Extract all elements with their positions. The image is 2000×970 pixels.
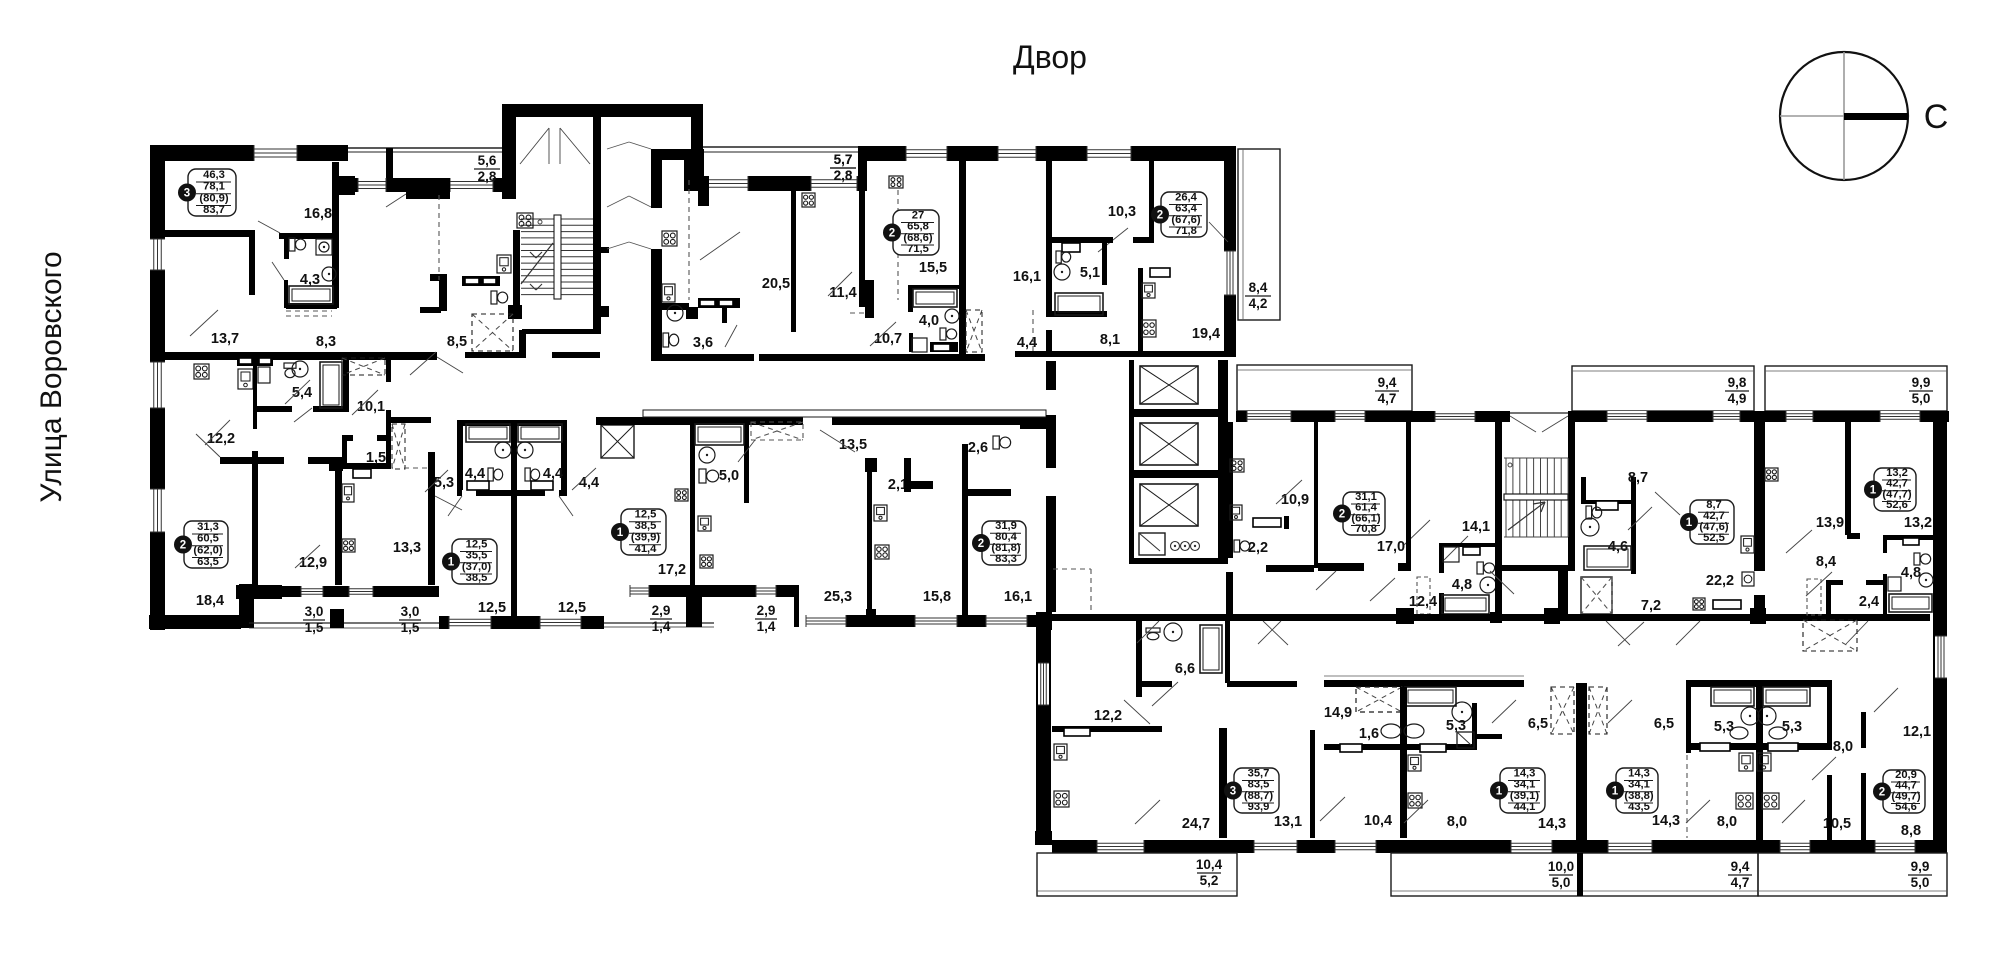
svg-text:(62,0): (62,0) (193, 544, 222, 556)
svg-text:16,1: 16,1 (1004, 589, 1032, 605)
svg-text:13,1: 13,1 (1274, 814, 1302, 830)
svg-text:2,8: 2,8 (834, 168, 853, 183)
svg-text:4,8: 4,8 (1452, 577, 1472, 593)
svg-text:7,2: 7,2 (1641, 598, 1661, 614)
svg-text:1: 1 (1612, 786, 1619, 798)
svg-text:5,2: 5,2 (1200, 873, 1219, 888)
svg-text:4,4: 4,4 (1017, 335, 1037, 351)
svg-text:5,0: 5,0 (1911, 875, 1930, 890)
svg-text:4,7: 4,7 (1378, 391, 1397, 406)
svg-text:5,3: 5,3 (1714, 719, 1734, 735)
svg-text:14,3: 14,3 (1652, 813, 1680, 829)
svg-text:60,5: 60,5 (197, 533, 219, 545)
svg-text:8,4: 8,4 (1249, 280, 1268, 295)
svg-text:12,5: 12,5 (635, 509, 657, 521)
svg-text:8,0: 8,0 (1833, 739, 1853, 755)
svg-text:4,0: 4,0 (919, 313, 939, 329)
svg-text:2: 2 (978, 538, 984, 550)
svg-text:18,4: 18,4 (196, 593, 224, 609)
svg-text:5,0: 5,0 (719, 468, 739, 484)
svg-text:1: 1 (1870, 485, 1877, 497)
svg-text:13,9: 13,9 (1816, 515, 1844, 531)
svg-text:2,8: 2,8 (478, 169, 497, 184)
svg-text:11,4: 11,4 (829, 285, 856, 301)
svg-text:12,5: 12,5 (478, 600, 506, 616)
svg-text:15,8: 15,8 (923, 589, 951, 605)
svg-text:3,0: 3,0 (305, 604, 324, 619)
svg-text:10,4: 10,4 (1196, 857, 1223, 872)
svg-text:3,0: 3,0 (401, 604, 420, 619)
svg-text:9,4: 9,4 (1731, 859, 1750, 874)
svg-text:1: 1 (448, 557, 455, 569)
svg-text:8,5: 8,5 (447, 334, 467, 350)
svg-text:3,6: 3,6 (693, 335, 713, 351)
svg-text:4,9: 4,9 (1728, 391, 1747, 406)
svg-text:22,2: 22,2 (1706, 573, 1734, 589)
svg-text:8,1: 8,1 (1100, 332, 1120, 348)
svg-text:1,6: 1,6 (1359, 726, 1379, 742)
svg-text:8,7: 8,7 (1628, 470, 1648, 486)
svg-text:35,7: 35,7 (1248, 767, 1270, 779)
svg-text:17,0: 17,0 (1377, 539, 1405, 555)
svg-text:9,9: 9,9 (1911, 859, 1930, 874)
svg-text:4,4: 4,4 (465, 466, 485, 482)
svg-text:6,5: 6,5 (1654, 716, 1674, 732)
svg-text:2,9: 2,9 (757, 603, 776, 618)
svg-text:8,3: 8,3 (316, 334, 336, 350)
svg-text:10,3: 10,3 (1108, 204, 1136, 220)
svg-text:8,0: 8,0 (1447, 814, 1467, 830)
svg-text:9,8: 9,8 (1728, 375, 1747, 390)
svg-text:2: 2 (1339, 509, 1345, 521)
svg-text:12,2: 12,2 (1094, 708, 1122, 724)
svg-text:8,4: 8,4 (1816, 554, 1836, 570)
svg-text:5,1: 5,1 (1080, 265, 1100, 281)
svg-text:4,4: 4,4 (579, 475, 599, 491)
svg-text:5,0: 5,0 (1912, 391, 1931, 406)
svg-text:17,2: 17,2 (658, 562, 686, 578)
svg-text:14,9: 14,9 (1324, 705, 1352, 721)
svg-text:4,6: 4,6 (1608, 539, 1628, 555)
svg-text:2: 2 (1879, 787, 1885, 799)
svg-text:8,8: 8,8 (1901, 823, 1921, 839)
svg-text:5,0: 5,0 (1552, 875, 1571, 890)
svg-text:19,4: 19,4 (1192, 326, 1220, 342)
svg-text:5,3: 5,3 (1782, 719, 1802, 735)
svg-text:46,3: 46,3 (203, 169, 225, 181)
svg-text:2,9: 2,9 (652, 603, 671, 618)
svg-text:5,7: 5,7 (834, 152, 853, 167)
svg-text:1,4: 1,4 (757, 619, 776, 634)
svg-text:83,7: 83,7 (203, 204, 225, 216)
svg-text:14,3: 14,3 (1538, 816, 1566, 832)
svg-text:С: С (1924, 98, 1949, 136)
svg-text:10,1: 10,1 (357, 399, 385, 415)
svg-text:10,4: 10,4 (1364, 813, 1392, 829)
svg-text:2,4: 2,4 (1859, 594, 1879, 610)
svg-text:6,5: 6,5 (1528, 716, 1548, 732)
svg-text:31,3: 31,3 (197, 521, 219, 533)
svg-text:4,2: 4,2 (1249, 296, 1268, 311)
svg-text:26,4: 26,4 (1175, 191, 1198, 203)
svg-text:25,3: 25,3 (824, 589, 852, 605)
svg-text:1: 1 (617, 527, 624, 539)
svg-text:1: 1 (1686, 517, 1693, 529)
svg-text:4,8: 4,8 (1901, 565, 1921, 581)
svg-text:13,7: 13,7 (211, 331, 239, 347)
svg-text:63,5: 63,5 (197, 556, 219, 568)
svg-text:16,8: 16,8 (304, 206, 332, 222)
svg-text:1: 1 (1496, 786, 1503, 798)
svg-text:14,3: 14,3 (1628, 767, 1650, 779)
svg-text:2,6: 2,6 (968, 440, 988, 456)
svg-text:1,4: 1,4 (652, 619, 671, 634)
svg-text:2: 2 (180, 540, 186, 552)
svg-text:4,7: 4,7 (1731, 875, 1750, 890)
svg-text:78,1: 78,1 (203, 181, 225, 193)
svg-text:12,9: 12,9 (299, 555, 327, 571)
svg-text:6,6: 6,6 (1175, 661, 1195, 677)
svg-text:15,5: 15,5 (919, 260, 947, 276)
svg-text:8,0: 8,0 (1717, 814, 1737, 830)
svg-text:(80,9): (80,9) (199, 192, 228, 204)
svg-text:5,3: 5,3 (1446, 718, 1466, 734)
svg-text:5,6: 5,6 (478, 153, 497, 168)
svg-text:14,3: 14,3 (1514, 767, 1536, 779)
svg-text:10,9: 10,9 (1281, 492, 1309, 508)
svg-text:9,9: 9,9 (1912, 375, 1931, 390)
svg-text:9,4: 9,4 (1378, 375, 1397, 390)
svg-text:27: 27 (912, 209, 924, 221)
svg-text:1,5: 1,5 (401, 620, 420, 635)
svg-text:12,5: 12,5 (466, 538, 488, 550)
svg-text:13,3: 13,3 (393, 540, 421, 556)
svg-text:3: 3 (184, 188, 190, 200)
svg-text:5,3: 5,3 (434, 475, 454, 491)
svg-text:10,0: 10,0 (1548, 859, 1574, 874)
svg-text:2: 2 (1157, 210, 1163, 222)
svg-text:2: 2 (889, 228, 895, 240)
svg-text:20,5: 20,5 (762, 276, 790, 292)
svg-text:1,5: 1,5 (305, 620, 324, 635)
svg-text:1,5: 1,5 (366, 450, 386, 466)
svg-text:12,5: 12,5 (558, 600, 586, 616)
svg-text:3: 3 (1230, 786, 1236, 798)
svg-text:12,4: 12,4 (1409, 594, 1437, 610)
svg-text:Двор: Двор (1013, 39, 1087, 75)
svg-text:24,7: 24,7 (1182, 816, 1210, 832)
svg-text:4,4: 4,4 (543, 466, 563, 482)
svg-text:16,1: 16,1 (1013, 269, 1041, 285)
svg-text:2,2: 2,2 (1248, 540, 1268, 556)
svg-text:12,1: 12,1 (1903, 724, 1931, 740)
svg-text:14,1: 14,1 (1462, 519, 1490, 535)
svg-text:13,2: 13,2 (1904, 515, 1932, 531)
svg-text:Улица Воровского: Улица Воровского (35, 251, 68, 502)
